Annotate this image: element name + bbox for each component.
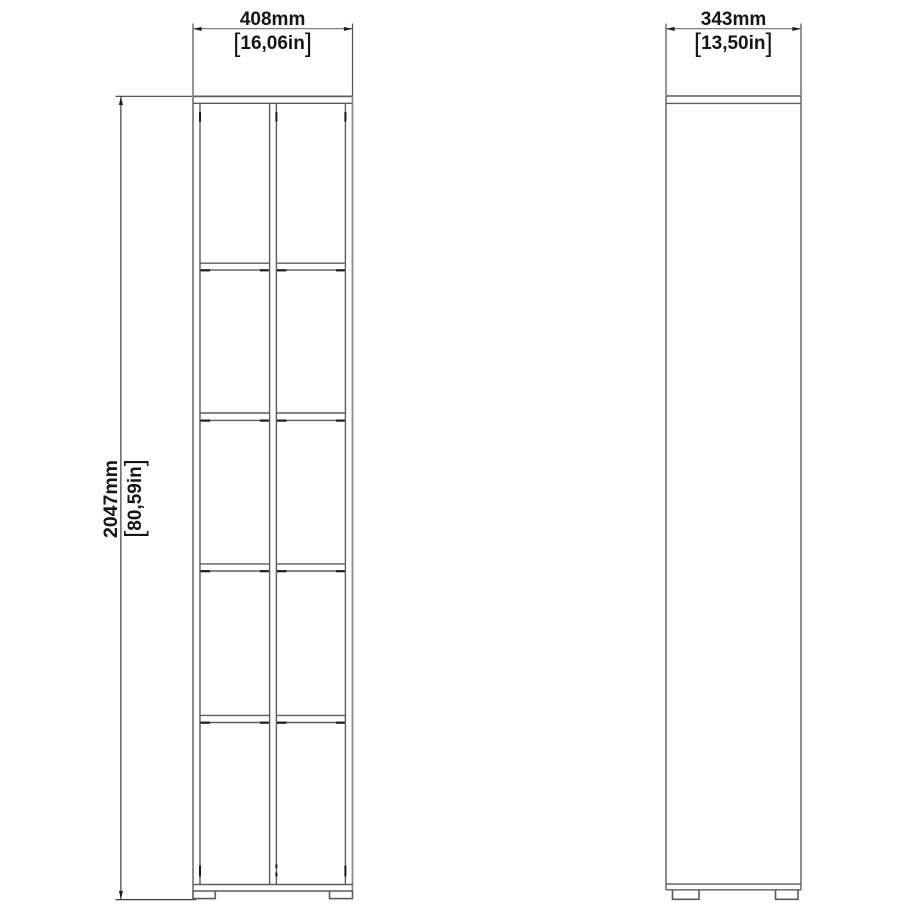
svg-text:408mm: 408mm — [240, 9, 306, 30]
svg-text:[80,59in]: [80,59in] — [121, 459, 149, 538]
svg-text:[16,06in]: [16,06in] — [233, 29, 312, 57]
svg-text:2047mm: 2047mm — [100, 460, 122, 538]
svg-text:[13,50in]: [13,50in] — [694, 29, 773, 57]
svg-text:343mm: 343mm — [701, 9, 767, 30]
